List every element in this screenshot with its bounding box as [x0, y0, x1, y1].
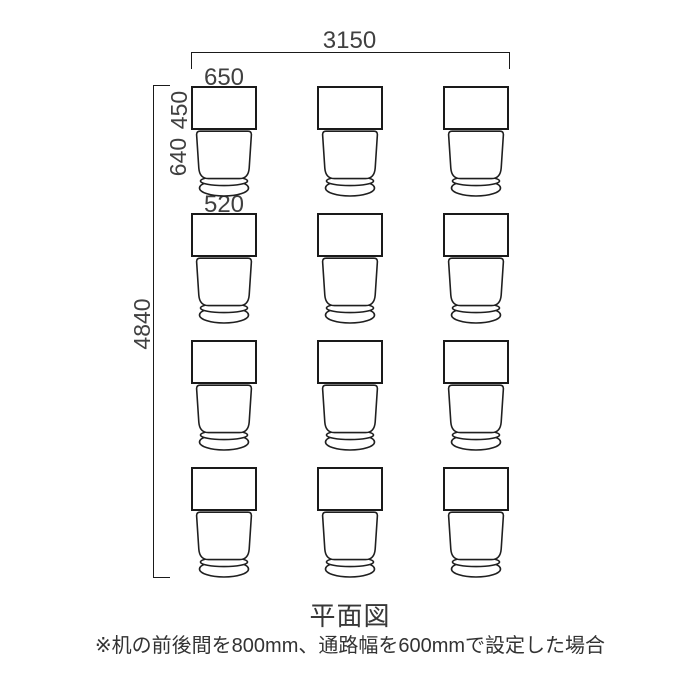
chair: [443, 257, 509, 327]
desk-chair-unit: [317, 213, 383, 327]
desk-chair-unit: [443, 340, 509, 454]
desk: [443, 213, 509, 257]
chair: [191, 384, 257, 454]
desk: [191, 340, 257, 384]
desk-chair-unit: [191, 86, 257, 200]
caption-note: ※机の前後間を800mm、通路幅を600mmで設定した場合: [0, 633, 700, 659]
chair: [443, 511, 509, 581]
desk: [191, 86, 257, 130]
desk-chair-unit: [191, 467, 257, 581]
desk-chair-unit: [443, 86, 509, 200]
chair: [443, 384, 509, 454]
chair: [443, 130, 509, 200]
chair: [191, 130, 257, 200]
desk-chair-unit: [191, 340, 257, 454]
desk: [443, 86, 509, 130]
desk-chair-unit: [443, 213, 509, 327]
dim-label-total-width: 3150: [191, 29, 508, 53]
desk-chair-unit: [191, 213, 257, 327]
desk-chair-unit: [317, 467, 383, 581]
caption-title: 平面図: [0, 602, 700, 630]
dim-label-total-height: 4840: [130, 294, 154, 354]
dim-label-chair-depth: 640: [166, 127, 190, 187]
chair: [317, 384, 383, 454]
desk: [191, 213, 257, 257]
chair: [317, 130, 383, 200]
desk: [317, 213, 383, 257]
desk: [317, 86, 383, 130]
desk-chair-unit: [317, 340, 383, 454]
chair: [317, 257, 383, 327]
desk-chair-unit: [317, 86, 383, 200]
desk: [317, 467, 383, 511]
chair: [191, 257, 257, 327]
chair: [317, 511, 383, 581]
desk: [191, 467, 257, 511]
desk: [317, 340, 383, 384]
desk-chair-unit: [443, 467, 509, 581]
desk: [443, 340, 509, 384]
floor-plan-diagram: 3150 650 450 640 520 4840: [0, 0, 700, 700]
desk: [443, 467, 509, 511]
chair: [191, 511, 257, 581]
